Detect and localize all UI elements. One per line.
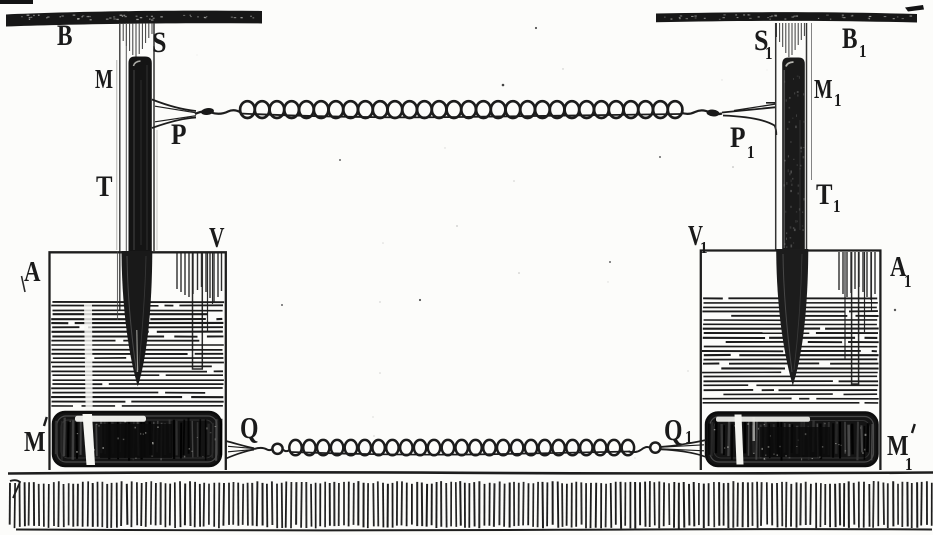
svg-text:1: 1 bbox=[834, 90, 842, 110]
svg-text:T: T bbox=[816, 178, 833, 211]
svg-text:Q: Q bbox=[240, 410, 259, 445]
svg-text:B: B bbox=[842, 22, 858, 55]
svg-text:1: 1 bbox=[905, 454, 913, 474]
svg-text:1: 1 bbox=[765, 43, 773, 63]
svg-text:M: M bbox=[24, 426, 46, 458]
svg-text:M: M bbox=[95, 64, 113, 94]
svg-text:1: 1 bbox=[904, 271, 912, 291]
svg-text:A: A bbox=[24, 256, 41, 288]
svg-text:S: S bbox=[152, 26, 167, 59]
svg-text:P: P bbox=[730, 121, 746, 154]
svg-text:1: 1 bbox=[685, 427, 693, 447]
svg-text:T: T bbox=[96, 170, 113, 203]
svg-text:1: 1 bbox=[859, 41, 867, 61]
svg-text:B: B bbox=[57, 19, 73, 52]
svg-text:M: M bbox=[814, 74, 833, 104]
svg-text:V: V bbox=[209, 222, 225, 254]
svg-text:Q: Q bbox=[664, 412, 683, 447]
svg-text:1: 1 bbox=[700, 238, 708, 257]
svg-text:1: 1 bbox=[833, 196, 841, 216]
svg-text:1: 1 bbox=[747, 142, 755, 162]
svg-text:P: P bbox=[171, 118, 187, 151]
